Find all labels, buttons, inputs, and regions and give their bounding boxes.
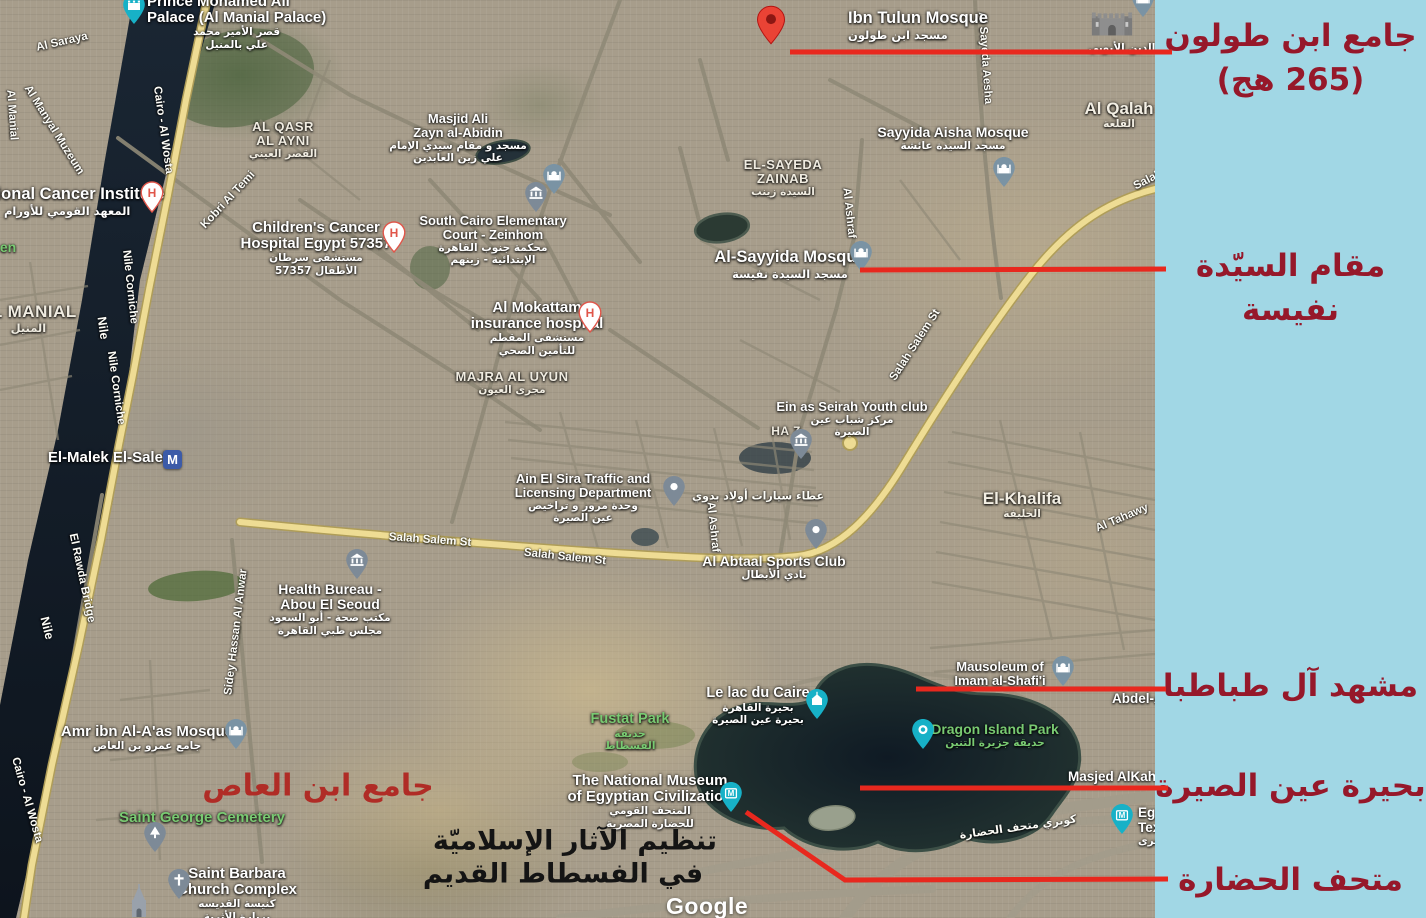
poi-label-prince-palace[interactable]: Prince Mohamed AliPalace (Al Manial Pala… — [147, 0, 326, 51]
poi-label-citadel: قلعة صلاح الدين الأيوبي — [1088, 42, 1155, 54]
annotation-civilization-museum: متحف الحضارة — [1155, 858, 1426, 902]
annotation-ibn-tulun: جامع ابن طولون (265 هج) — [1155, 14, 1426, 102]
church-pin-icon[interactable] — [167, 868, 191, 900]
metro-station-icon[interactable]: M — [163, 450, 182, 469]
poi-label-al-sayyida-mosque[interactable]: Al-Sayyida Mosqueمسجد السيدة نفيسة — [714, 249, 865, 280]
poi-label-saint-barbara-church[interactable]: Saint BarbaraChurch Complex كنيسة القديس… — [177, 866, 297, 918]
area-label-el-sayeda-zainab: EL-SAYEDAZAINABالسيدة زينب — [744, 158, 822, 198]
area-label-el-khalifa: El-Khalifaالخليفة — [983, 490, 1061, 521]
street-label: عطاء سيارات أولاد بدوي — [692, 490, 824, 503]
cemetery-tree-pin-icon[interactable] — [143, 821, 167, 853]
map-overlay-red-text: جامع ابن العاص — [202, 769, 434, 804]
poi-label-abtaal-club[interactable]: Al Abtaal Sports Clubنادي الأبطال — [702, 554, 845, 581]
mosque-pin-icon[interactable] — [1131, 0, 1155, 18]
museum-pin-icon[interactable] — [719, 781, 743, 813]
area-label-el-manial: EL MANIALالمنيل — [0, 303, 77, 335]
mosque-pin-icon[interactable] — [224, 718, 248, 750]
hospital-pin-icon[interactable] — [578, 301, 602, 333]
mosque-pin-icon[interactable] — [849, 240, 873, 272]
area-label-majra-al-uyun: MAJRA AL UYUNمجرى العيون — [456, 370, 569, 396]
poi-label-sayyida-aisha[interactable]: Sayyida Aisha Mosqueمسجد السيدة عائشة — [877, 125, 1028, 152]
poi-label-museum-civilization[interactable]: The National Museumof Egyptian Civilizat… — [567, 773, 732, 830]
map-overlay-black-text-line1: تنظيم الآثار الإسلاميّة — [433, 826, 717, 857]
annotation-sayyida-nafisa: مقام السيّدة نفيسة — [1155, 244, 1426, 332]
poi-label-le-lac-du-caire[interactable]: Le lac du Caire بحيرة القاهرةبحيرة عين ا… — [706, 686, 809, 726]
area-label-al-qasr-al-ayni: AL QASRAL AYNIالقصر العيني — [249, 120, 317, 160]
poi-label-dragon-island-park[interactable]: Dragon Island Parkحديقة جزيرة التنين — [931, 722, 1059, 749]
church-building-icon — [125, 884, 153, 918]
dot-pin-icon[interactable] — [662, 475, 686, 507]
poi-label-abdel[interactable]: Abdel-A — [1112, 692, 1155, 707]
red-destination-pin-icon[interactable] — [756, 5, 786, 45]
health-bureau-pin-icon[interactable] — [345, 548, 369, 580]
dragon-park-pin-icon[interactable] — [911, 718, 935, 750]
poi-label-egy-tex[interactable]: EgyTexصرى — [1138, 806, 1155, 847]
area-label-al-qalah: Al Qalahالقلعة — [1085, 100, 1154, 131]
partial-label: en — [0, 239, 16, 255]
citadel-building-icon — [1090, 8, 1134, 38]
google-logo[interactable]: Google — [666, 893, 748, 918]
hospital-pin-icon[interactable] — [382, 221, 406, 253]
poi-label-ibn-tulun-mosque[interactable]: Ibn Tulun Mosqueمسجد ابن طولون — [848, 10, 988, 41]
screenshot-root: H M — [0, 0, 1426, 918]
poi-label-masjed-alkah[interactable]: Masjed AlKah — [1068, 770, 1155, 785]
poi-label-el-malek-el-saleh[interactable]: El-Malek El-Saleh — [48, 450, 172, 466]
stadium-oval — [693, 210, 750, 245]
poi-label-masjid-zayn[interactable]: Masjid AliZayn al-Abidin مسجد و مقام سيد… — [389, 112, 527, 165]
poi-label-amr-mosque[interactable]: Amr ibn Al-A'as Mosqueجامع عمرو بن العاص — [61, 724, 233, 753]
dot-pin-icon[interactable] — [804, 518, 828, 550]
annotation-ain-sira-lake: بحيرة عين الصيرة — [1155, 764, 1426, 808]
poi-label-fustat-park[interactable]: Fustat Park حديقةالفسطاط — [591, 712, 670, 752]
court-pin-icon[interactable] — [524, 181, 548, 213]
annotation-panel: جامع ابن طولون (265 هج) مقام السيّدة نفي… — [1155, 0, 1426, 918]
museum-pin-icon[interactable] — [1110, 803, 1134, 835]
poi-label-health-bureau[interactable]: Health Bureau -Abou El Seoud مكتب صحة - … — [269, 582, 390, 637]
river-label: Nile — [94, 316, 111, 341]
mosque-pin-icon[interactable] — [992, 156, 1016, 188]
hospital-pin-icon[interactable] — [140, 181, 164, 213]
palace-pin-icon[interactable] — [122, 0, 146, 25]
poi-label-children-cancer-hospital[interactable]: Children's CancerHospital Egypt 57357 مس… — [241, 220, 392, 277]
poi-label-ain-traffic-dept[interactable]: Ain El Sira Traffic andLicensing Departm… — [515, 472, 652, 525]
youth-club-pin-icon[interactable] — [789, 428, 813, 460]
mosque-pin-icon[interactable] — [1051, 655, 1075, 687]
lake-pin-icon[interactable] — [805, 688, 829, 720]
poi-label-mausoleum-shafii[interactable]: Mausoleum ofImam al-Shafi'i — [954, 660, 1045, 688]
map-canvas[interactable]: Al Saraya Al Manial Al Manyal Muzeum Cai… — [0, 0, 1155, 918]
map-overlay-black-text-line2: في الفسطاط القديم — [423, 859, 703, 890]
poi-label-south-court[interactable]: South Cairo ElementaryCourt - Zeinhom مح… — [419, 214, 566, 267]
annotation-tabataba: مشهد آل طباطبا — [1155, 664, 1426, 708]
